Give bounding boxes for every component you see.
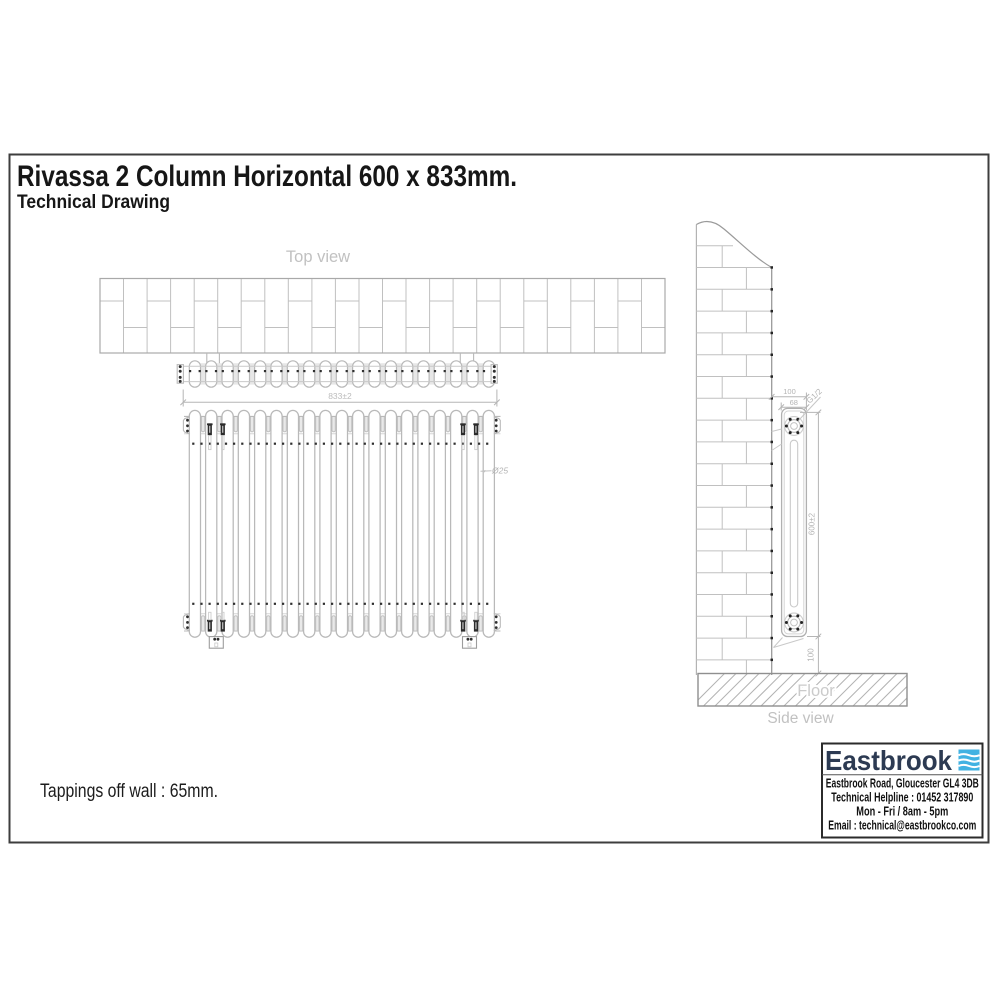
svg-text:Side view: Side view [767, 710, 834, 727]
svg-text:Mon - Fri / 8am - 5pm: Mon - Fri / 8am - 5pm [856, 805, 948, 819]
svg-text:68: 68 [790, 398, 798, 407]
svg-text:Rivassa 2 Column Horizontal 60: Rivassa 2 Column Horizontal 600 x 833mm. [17, 160, 517, 193]
svg-text:100: 100 [783, 387, 796, 396]
svg-text:Technical Drawing: Technical Drawing [17, 192, 170, 213]
svg-text:833±2: 833±2 [328, 391, 352, 401]
svg-text:Eastbrook: Eastbrook [825, 745, 953, 776]
svg-text:Eastbrook Road, Gloucester GL4: Eastbrook Road, Gloucester GL4 3DB [826, 777, 979, 791]
svg-text:600±2: 600±2 [808, 512, 817, 535]
svg-text:Ø25: Ø25 [491, 466, 508, 476]
svg-text:Technical Helpline : 01452 317: Technical Helpline : 01452 317890 [831, 791, 973, 805]
svg-text:Email : technical@eastbrookco.: Email : technical@eastbrookco.com [828, 819, 976, 833]
svg-text:Floor: Floor [797, 682, 835, 700]
svg-text:Top view: Top view [286, 248, 350, 266]
svg-text:Tappings off wall : 65mm.: Tappings off wall : 65mm. [40, 781, 218, 802]
svg-text:100: 100 [807, 648, 816, 662]
